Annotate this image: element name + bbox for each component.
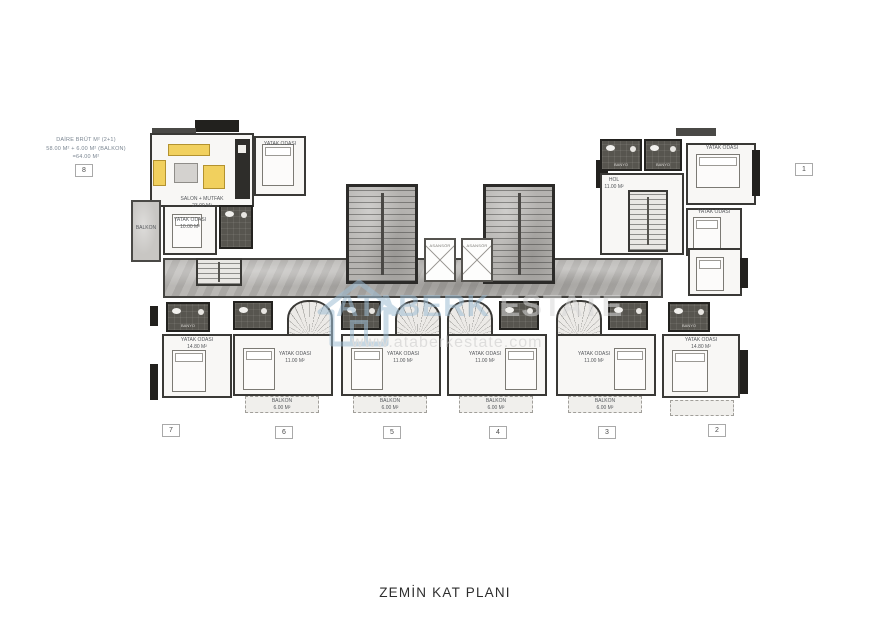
- wall-segment: [676, 128, 716, 136]
- room-label: YATAK ODASI: [578, 352, 610, 358]
- bed: [351, 348, 383, 390]
- unit-badge-3: 3: [598, 426, 616, 439]
- stairs: [628, 190, 668, 252]
- bed: [693, 217, 721, 251]
- room-label: YATAK ODASI: [387, 352, 419, 358]
- room-label: YATAK ODASI: [174, 218, 206, 224]
- annotation-line2: 58.00 M² + 6.00 M² (BALKON): [28, 145, 144, 154]
- dining-set: [203, 165, 225, 189]
- room-label: YATAK ODASI: [264, 142, 296, 148]
- bed: [696, 154, 740, 188]
- room-label: YATAK ODASI: [706, 146, 738, 152]
- room-area: 11.00 M²: [584, 359, 603, 365]
- room-area: 6.00 M²: [274, 406, 291, 412]
- room-label: BALKON: [272, 399, 292, 405]
- sofa: [168, 144, 210, 156]
- area-annotation: DAİRE BRÜT M² (2+1) 58.00 M² + 6.00 M² (…: [28, 136, 144, 162]
- room-label: SALON + MUTFAK: [181, 197, 224, 203]
- room-label: YATAK ODASI: [279, 352, 311, 358]
- unit-badge-2: 2: [708, 424, 726, 437]
- plan-title: ZEMİN KAT PLANI: [0, 585, 890, 600]
- kitchen-counter: [235, 139, 250, 199]
- bathroom: BANYO: [668, 302, 710, 332]
- bathroom: [341, 301, 381, 330]
- unit-badge-1: 1: [795, 163, 813, 176]
- elevator-label: ASANSÖR: [463, 243, 491, 248]
- bathroom: BANYO: [644, 139, 682, 171]
- room-area: 14.80 M²: [691, 345, 711, 351]
- bed: [262, 144, 294, 186]
- room-label: BALKON: [486, 399, 506, 405]
- bed: [243, 348, 275, 390]
- bath-label: BANYO: [168, 323, 208, 328]
- bathroom: BANYO: [166, 302, 210, 332]
- room-area: 6.00 M²: [382, 406, 399, 412]
- room-area: 23.00 M²: [192, 204, 212, 210]
- room-label: YATAK ODASI: [685, 338, 717, 344]
- room-area: 11.00 M²: [393, 359, 412, 365]
- room-area: 11.00 M²: [604, 185, 623, 191]
- bathroom: [219, 205, 253, 249]
- room-label: YATAK ODASI: [698, 210, 730, 216]
- bed: [505, 348, 537, 390]
- room-area: 11.00 M²: [285, 359, 304, 365]
- wall-segment: [752, 150, 760, 196]
- elevator: ASANSÖR: [424, 238, 456, 282]
- room-area: 10.00 M²: [180, 225, 200, 231]
- bed: [172, 350, 206, 392]
- bath-label: BANYO: [670, 323, 708, 328]
- bath-label: BANYO: [602, 162, 640, 167]
- room-label: YATAK ODASI: [181, 338, 213, 344]
- room-label: YATAK ODASI: [469, 352, 501, 358]
- unit-badge-8: 8: [75, 164, 93, 177]
- stair-tower: [483, 184, 555, 284]
- wall-segment: [150, 306, 158, 326]
- armchair: [153, 160, 166, 186]
- room-area: 6.00 M²: [597, 406, 614, 412]
- room-area: 14.80 M²: [187, 345, 207, 351]
- entry-stairs: [196, 258, 242, 286]
- stair-tower: [346, 184, 418, 284]
- coffee-table: [174, 163, 198, 183]
- balcony: [670, 400, 734, 416]
- room-label: BALKON: [595, 399, 615, 405]
- bed: [614, 348, 646, 390]
- unit-badge-4: 4: [489, 426, 507, 439]
- room-area: 11.00 M²: [475, 359, 494, 365]
- annotation-line3: =64.00 M²: [28, 153, 144, 162]
- unit-badge-5: 5: [383, 426, 401, 439]
- wall-segment: [740, 350, 748, 394]
- bed: [696, 257, 724, 291]
- bath-label: BANYO: [646, 162, 680, 167]
- bathroom: [499, 301, 539, 330]
- bathroom: [608, 301, 648, 330]
- floor-plan-canvas: DAİRE BRÜT M² (2+1) 58.00 M² + 6.00 M² (…: [0, 0, 890, 630]
- bathroom: BANYO: [600, 139, 642, 171]
- room-label: BALKON: [380, 399, 400, 405]
- wall-segment: [740, 258, 748, 288]
- elevator: ASANSÖR: [461, 238, 493, 282]
- room-label: HOL: [609, 178, 619, 184]
- room-area: 6.00 M²: [488, 406, 505, 412]
- annotation-line1: DAİRE BRÜT M² (2+1): [28, 136, 144, 145]
- elevator-label: ASANSÖR: [426, 243, 454, 248]
- room-label: BALKON: [136, 226, 156, 232]
- wall-segment: [150, 364, 158, 400]
- bathroom: [233, 301, 273, 330]
- unit-badge-7: 7: [162, 424, 180, 437]
- bed: [672, 350, 708, 392]
- wall-segment: [195, 120, 239, 132]
- unit-badge-6: 6: [275, 426, 293, 439]
